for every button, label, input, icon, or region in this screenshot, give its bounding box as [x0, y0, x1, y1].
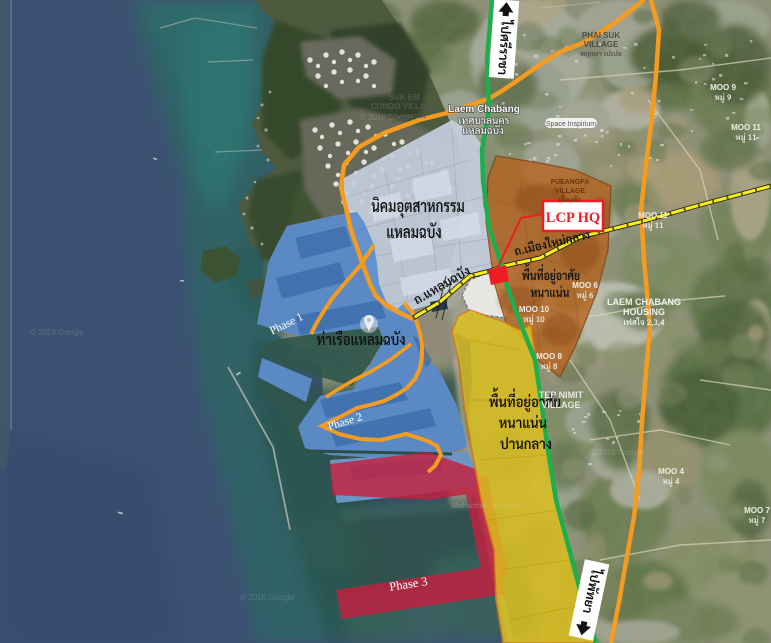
svg-text:MOO 7: MOO 7: [744, 506, 770, 515]
svg-text:Laem Chabang: Laem Chabang: [448, 104, 520, 115]
svg-text:MOO 9: MOO 9: [710, 83, 736, 92]
svg-text:CONDO VILLAGE: CONDO VILLAGE: [371, 102, 438, 111]
svg-text:Mahadthai University: Mahadthai University: [452, 501, 522, 510]
svg-text:MOO 11: MOO 11: [638, 211, 668, 220]
svg-text:VILLAGE: VILLAGE: [541, 400, 580, 410]
svg-text:VILLAGE: VILLAGE: [555, 188, 586, 195]
svg-text:© 2018 Google: © 2018 Google: [360, 113, 414, 122]
svg-text:TEP NIMIT: TEP NIMIT: [539, 390, 584, 400]
svg-text:© 2018 Google: © 2018 Google: [30, 328, 84, 337]
svg-text:Space Inspirium: Space Inspirium: [546, 121, 596, 128]
svg-text:VILLAGE: VILLAGE: [584, 40, 619, 49]
svg-text:PHAI SUK: PHAI SUK: [582, 31, 620, 40]
svg-text:© 2018 Google: © 2018 Google: [240, 593, 294, 602]
svg-text:SUK EM: SUK EM: [388, 93, 419, 102]
svg-text:MOO 4: MOO 4: [658, 467, 684, 476]
svg-text:© 2018 Google: © 2018 Google: [590, 448, 644, 457]
svg-text:LAEM CHABANG: LAEM CHABANG: [607, 297, 681, 307]
svg-text:HOUSING: HOUSING: [623, 307, 665, 317]
svg-text:MOO 10: MOO 10: [519, 305, 550, 314]
svg-text:MOO 8: MOO 8: [536, 352, 562, 361]
svg-text:LCP HQ: LCP HQ: [546, 210, 600, 226]
svg-text:MOO 6: MOO 6: [572, 281, 598, 290]
svg-text:FUEANGFA: FUEANGFA: [551, 179, 590, 186]
svg-text:MOO 11: MOO 11: [731, 123, 761, 132]
